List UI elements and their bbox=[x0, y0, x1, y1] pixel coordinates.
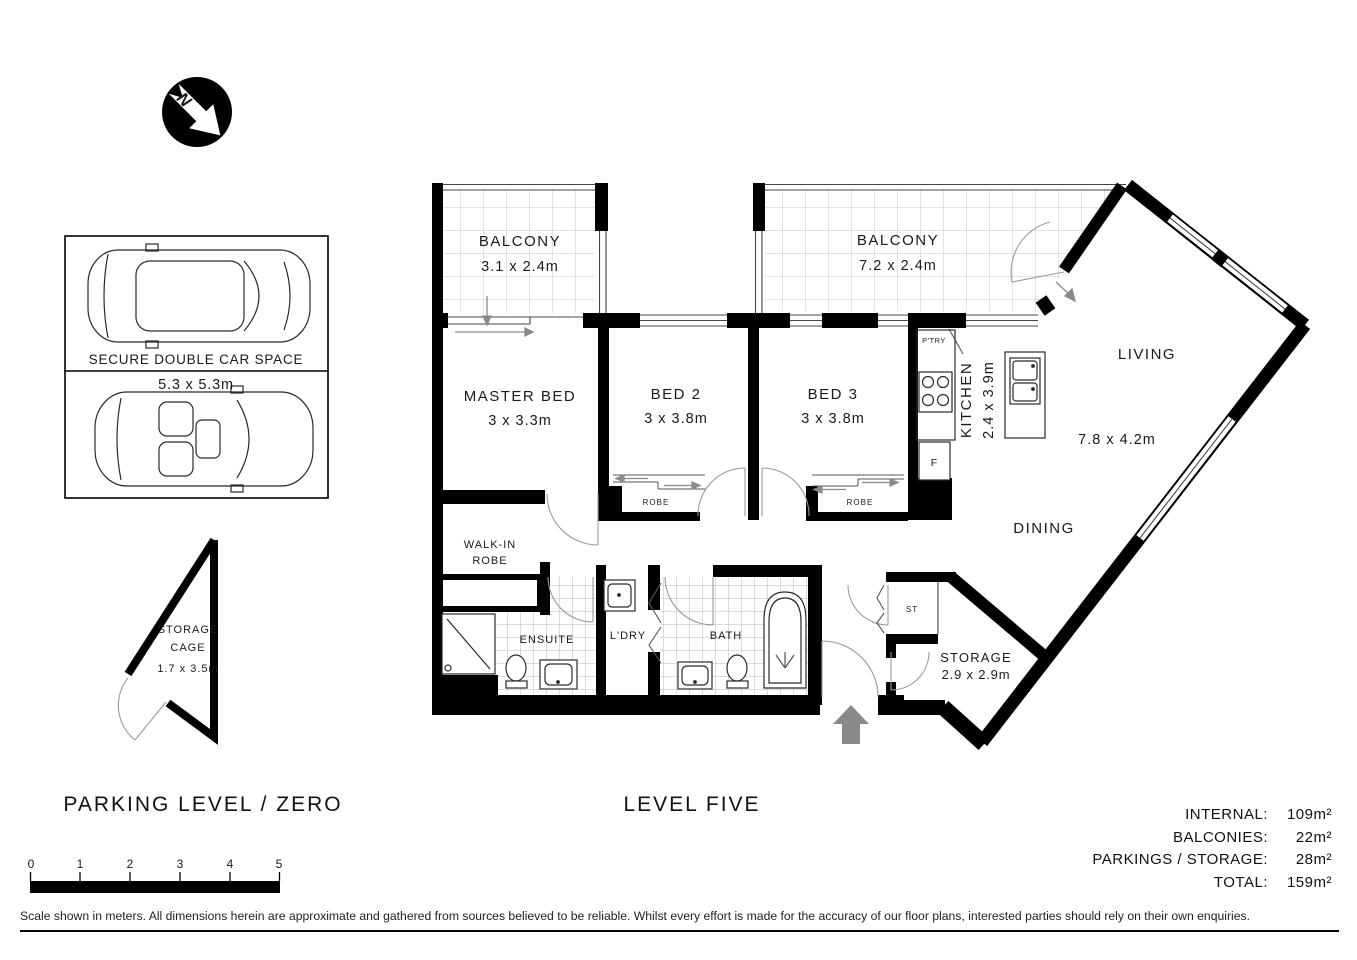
master-bed-label: MASTER BED bbox=[464, 388, 577, 405]
area-summary: INTERNAL: 109m² BALCONIES: 22m² PARKINGS… bbox=[1092, 804, 1332, 894]
ensuite-toilet bbox=[506, 655, 527, 688]
area-row-total: TOTAL: 159m² bbox=[1092, 872, 1332, 895]
bed3-dim: 3 x 3.8m bbox=[801, 411, 865, 427]
entry-arrow-icon bbox=[833, 705, 869, 744]
car-space: SECURE DOUBLE CAR SPACE 5.3 x 5.3m bbox=[65, 236, 328, 498]
laundry-tub bbox=[604, 580, 635, 611]
area-label: TOTAL: bbox=[1214, 872, 1268, 895]
balcony-right-dim: 7.2 x 2.4m bbox=[859, 258, 937, 274]
scale-tick-5: 5 bbox=[276, 857, 283, 871]
scale-tick-2: 2 bbox=[127, 857, 134, 871]
fridge-label: F bbox=[931, 457, 937, 469]
robe-bed3-label: ROBE bbox=[847, 498, 874, 507]
storage-cage-dimensions: 1.7 x 3.5m bbox=[157, 663, 218, 675]
laundry-label: L'DRY bbox=[610, 630, 646, 642]
scale-tick-1: 1 bbox=[77, 857, 84, 871]
storage-cage: STORAGE CAGE 1.7 x 3.5m bbox=[118, 540, 218, 740]
ensuite-label: ENSUITE bbox=[520, 634, 575, 646]
storage-cage-label-1: STORAGE bbox=[158, 624, 219, 636]
balcony-left-label: BALCONY bbox=[479, 233, 561, 250]
shower bbox=[442, 614, 495, 674]
bed3-label: BED 3 bbox=[808, 386, 859, 403]
area-row-balconies: BALCONIES: 22m² bbox=[1092, 827, 1332, 850]
disclaimer-text: Scale shown in meters. All dimensions he… bbox=[20, 909, 1339, 932]
ensuite-sink bbox=[540, 660, 577, 689]
area-row-parkings-storage: PARKINGS / STORAGE: 28m² bbox=[1092, 849, 1332, 872]
bath-toilet bbox=[727, 655, 748, 688]
scale-tick-0: 0 bbox=[28, 857, 35, 871]
bath-label: BATH bbox=[710, 630, 743, 642]
car-space-title: SECURE DOUBLE CAR SPACE bbox=[89, 352, 304, 367]
area-value: 109m² bbox=[1268, 804, 1332, 827]
area-label: INTERNAL: bbox=[1185, 804, 1268, 827]
floorplan-page: N SECURE DOUBLE CAR SPACE 5.3 x bbox=[0, 0, 1357, 960]
car-space-dimensions: 5.3 x 5.3m bbox=[158, 377, 234, 393]
bed2-dim: 3 x 3.8m bbox=[644, 411, 708, 427]
scale-bar: 0 1 2 3 4 5 bbox=[28, 857, 283, 893]
balcony-left-dim: 3.1 x 2.4m bbox=[481, 259, 559, 275]
living-label: LIVING bbox=[1118, 346, 1176, 363]
car-bottom-icon bbox=[95, 386, 313, 492]
storage-closet-label: ST bbox=[906, 605, 918, 614]
dining-label: DINING bbox=[1013, 520, 1075, 537]
north-arrow-icon: N bbox=[162, 77, 233, 148]
island-bench bbox=[1005, 352, 1045, 438]
robe-bed2-label: ROBE bbox=[643, 498, 670, 507]
storage-label: STORAGE bbox=[940, 650, 1012, 665]
bed2-label: BED 2 bbox=[651, 386, 702, 403]
area-row-internal: INTERNAL: 109m² bbox=[1092, 804, 1332, 827]
storage-cage-label-2: CAGE bbox=[170, 642, 205, 654]
parking-level-title: PARKING LEVEL / ZERO bbox=[38, 793, 368, 817]
floor-level-title: LEVEL FIVE bbox=[562, 793, 822, 817]
balcony-right-label: BALCONY bbox=[857, 232, 939, 249]
kitchen-label: KITCHEN bbox=[958, 362, 975, 438]
scale-tick-4: 4 bbox=[227, 857, 234, 871]
storage-dim: 2.9 x 2.9m bbox=[942, 667, 1011, 682]
bath-sink bbox=[678, 662, 712, 689]
area-label: BALCONIES: bbox=[1173, 827, 1268, 850]
area-value: 159m² bbox=[1268, 872, 1332, 895]
living-dim: 7.8 x 4.2m bbox=[1078, 432, 1156, 448]
kitchen-dim: 2.4 x 3.9m bbox=[981, 361, 997, 439]
pantry-label: P'TRY bbox=[922, 336, 946, 345]
wardrobe-rail bbox=[440, 577, 540, 609]
area-value: 28m² bbox=[1268, 849, 1332, 872]
scale-tick-3: 3 bbox=[177, 857, 184, 871]
area-label: PARKINGS / STORAGE: bbox=[1092, 849, 1268, 872]
master-bed-dim: 3 x 3.3m bbox=[488, 413, 552, 429]
walk-in-robe-label-2: ROBE bbox=[472, 555, 507, 567]
area-value: 22m² bbox=[1268, 827, 1332, 850]
walk-in-robe-label-1: WALK-IN bbox=[464, 539, 516, 551]
bathtub bbox=[764, 592, 806, 688]
car-top-icon bbox=[88, 244, 310, 348]
